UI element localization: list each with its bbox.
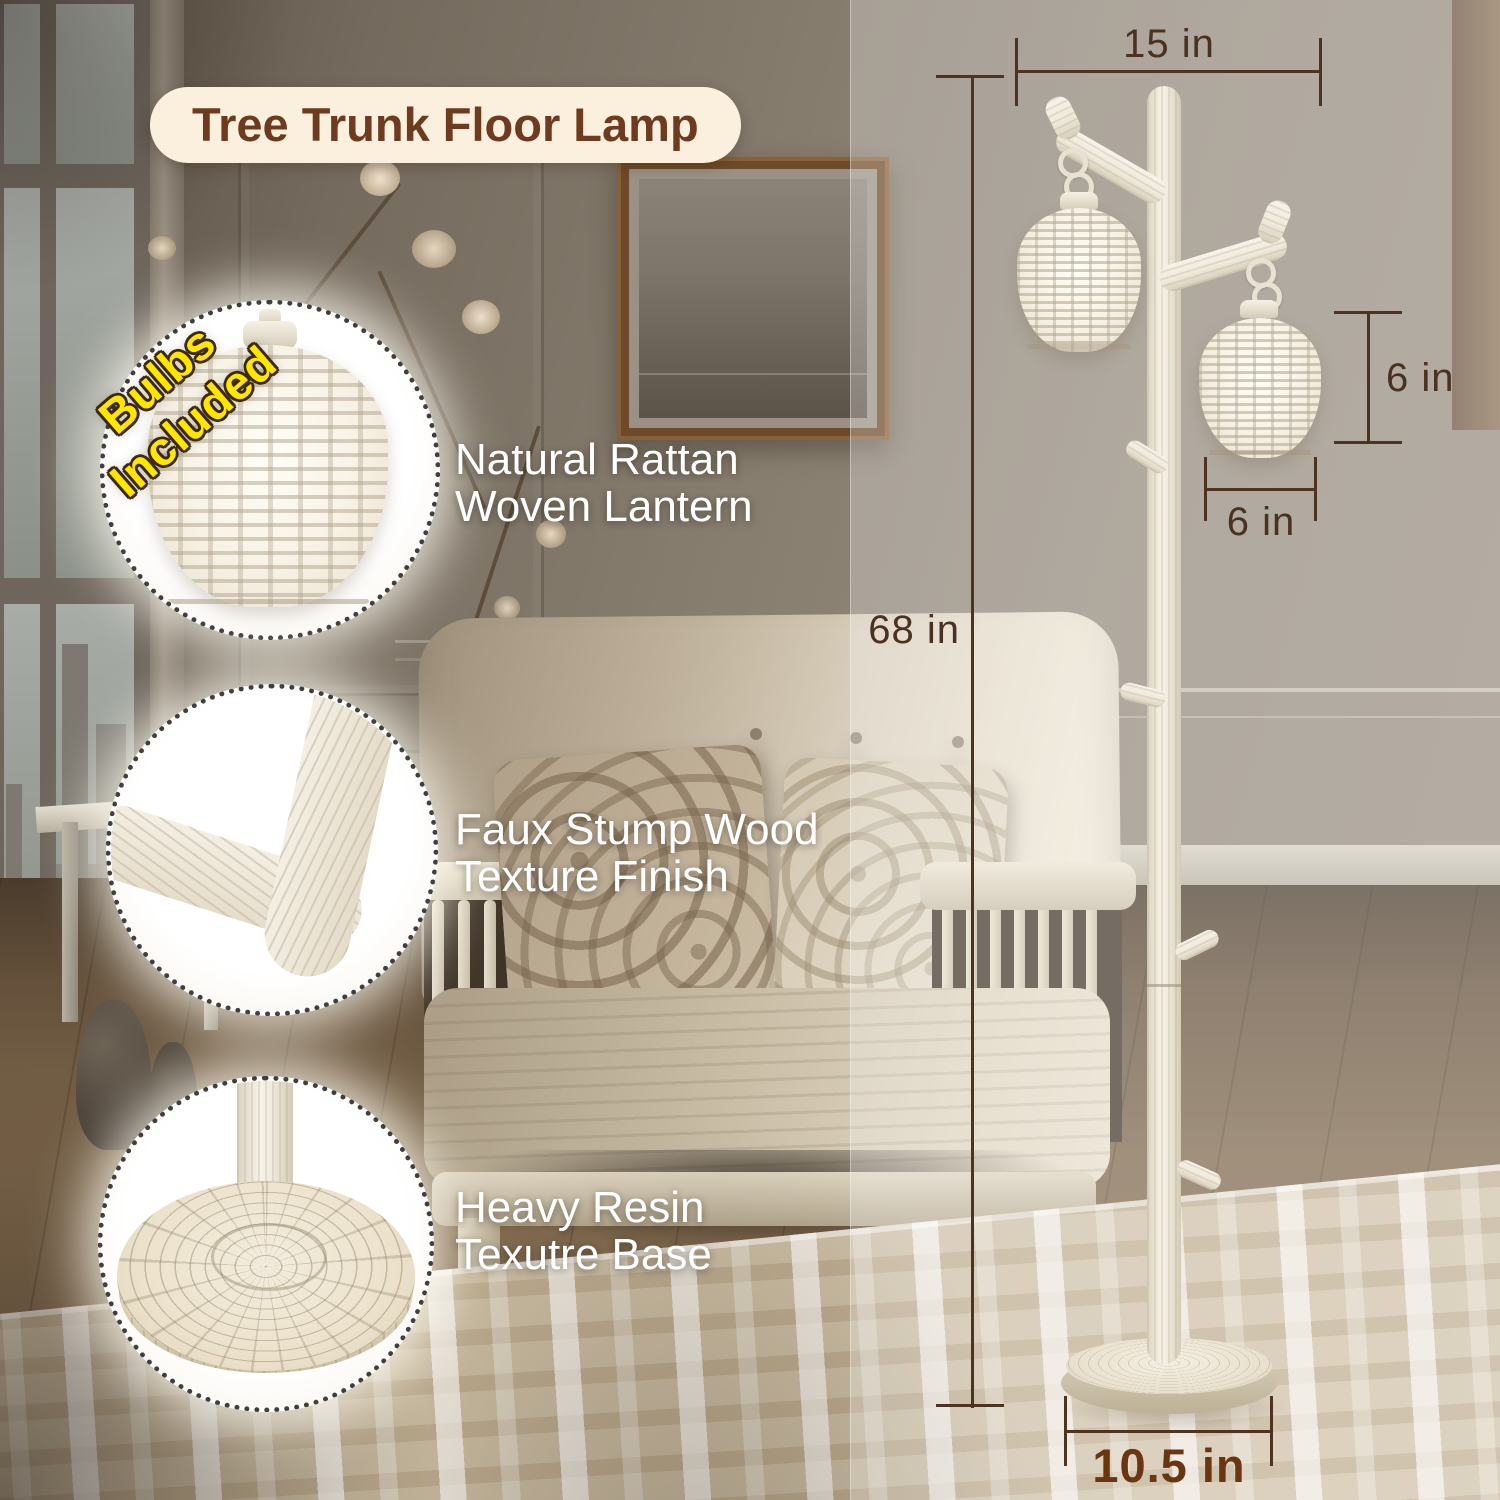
dim-line [1016, 70, 1322, 73]
base-zoom-hub [211, 1223, 327, 1291]
feature-line: Faux Stump Wood [455, 806, 885, 853]
callout-circle-wood [106, 684, 438, 1016]
lamp-pole-seam [1147, 984, 1181, 987]
dim-line [1065, 1430, 1273, 1433]
feature-line: Natural Rattan [455, 436, 885, 483]
dim-tick [1334, 441, 1402, 444]
dim-label-base-diameter: 10.5 in [1065, 1438, 1273, 1493]
dim-label-shade-height: 6 in [1386, 356, 1500, 401]
dim-label-overall-height: 68 in [810, 608, 960, 653]
feature-line: Texture Finish [455, 853, 885, 900]
dim-line [1205, 488, 1317, 491]
dim-line [1367, 312, 1370, 444]
dim-tick [936, 1404, 1004, 1407]
product-infographic: 15 in 68 in 6 in 6 in 10.5 in [0, 0, 1500, 1500]
feature-line: Texutre Base [455, 1231, 885, 1278]
dim-label-shade-width: 6 in [1205, 500, 1317, 545]
feature-line: Woven Lantern [455, 483, 885, 530]
shade-cap [1240, 300, 1278, 318]
dim-label-overall-width: 15 in [1016, 22, 1322, 67]
dim-tick [936, 75, 1004, 78]
dim-tick [1334, 311, 1402, 314]
dim-line [971, 77, 974, 1408]
feature-label-base: Heavy Resin Texutre Base [455, 1184, 885, 1278]
feature-label-wood: Faux Stump Wood Texture Finish [455, 806, 885, 900]
feature-line: Heavy Resin [455, 1184, 885, 1231]
rattan-shade-right [1199, 318, 1321, 458]
feature-label-lantern: Natural Rattan Woven Lantern [455, 436, 885, 530]
rattan-shade-left [1017, 208, 1141, 352]
branch-zoom-trunk [257, 684, 408, 984]
callout-circle-base [98, 1076, 434, 1412]
title-badge: Tree Trunk Floor Lamp [150, 87, 741, 163]
